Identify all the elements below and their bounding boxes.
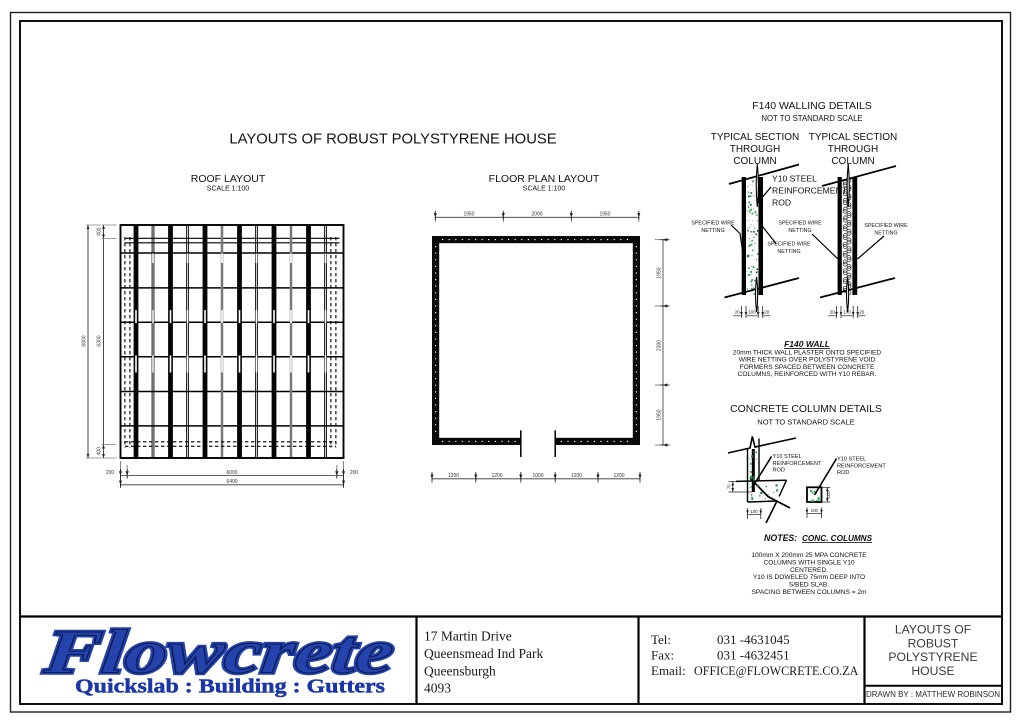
svg-text:400: 400 (97, 227, 103, 236)
svg-text:100: 100 (750, 509, 758, 514)
svg-text:Y10 IS DOWELED 75mm DEEP INTO: Y10 IS DOWELED 75mm DEEP INTO (753, 574, 865, 581)
svg-text:1200: 1200 (571, 473, 582, 479)
svg-text:COLUMN: COLUMN (733, 156, 776, 167)
svg-text:NETTING: NETTING (788, 228, 811, 234)
svg-text:Fax:: Fax: (651, 648, 674, 663)
svg-text:031 -4632451: 031 -4632451 (717, 648, 790, 663)
svg-text:Y10 STEEL: Y10 STEEL (773, 454, 802, 460)
svg-text:100: 100 (826, 490, 831, 498)
svg-text:LAYOUTS OF: LAYOUTS OF (895, 623, 971, 637)
svg-text:REINFORCEMENT: REINFORCEMENT (837, 463, 886, 469)
svg-text:S/BED SLAB.: S/BED SLAB. (789, 582, 829, 589)
svg-text:OFFICE@FLOWCRETE.CO.ZA: OFFICE@FLOWCRETE.CO.ZA (694, 664, 859, 678)
svg-text:17 Martin Drive: 17 Martin Drive (424, 629, 512, 644)
svg-text:F140 WALL: F140 WALL (784, 339, 830, 349)
svg-text:TYPICAL SECTION: TYPICAL SECTION (809, 132, 898, 143)
svg-text:NETTING: NETTING (874, 231, 897, 237)
svg-text:ROOF LAYOUT: ROOF LAYOUT (191, 173, 266, 185)
svg-text:HOUSE: HOUSE (911, 664, 954, 678)
svg-text:NOTES:: NOTES: (764, 533, 797, 543)
svg-text:200: 200 (106, 470, 115, 476)
svg-text:ROD: ROD (772, 198, 791, 208)
svg-text:SPECIFIED WIRE: SPECIFIED WIRE (778, 221, 822, 227)
svg-text:1950: 1950 (599, 211, 610, 217)
svg-text:1200: 1200 (613, 473, 624, 479)
svg-text:SCALE 1:100: SCALE 1:100 (207, 186, 250, 193)
svg-text:200: 200 (350, 470, 359, 476)
svg-text:Queensburgh: Queensburgh (424, 663, 496, 678)
svg-text:100: 100 (811, 508, 819, 513)
svg-text:Quickslab : Building : Gutters: Quickslab : Building : Gutters (75, 676, 385, 698)
svg-text:4093: 4093 (424, 681, 451, 696)
svg-text:Y10 STEEL: Y10 STEEL (772, 174, 817, 184)
svg-text:1200: 1200 (491, 473, 502, 479)
svg-text:REINFORCEMENT: REINFORCEMENT (773, 461, 822, 467)
svg-text:FORMERS SPACED BETWEEN CONCRET: FORMERS SPACED BETWEEN CONCRETE (740, 364, 875, 371)
svg-text:75: 75 (726, 484, 731, 489)
svg-text:TYPICAL SECTION: TYPICAL SECTION (711, 132, 800, 143)
svg-text:THROUGH: THROUGH (828, 144, 879, 155)
svg-text:031 -4631045: 031 -4631045 (717, 632, 790, 647)
svg-text:6300: 6300 (97, 335, 103, 346)
svg-text:NETTING: NETTING (777, 249, 800, 255)
svg-text:2300: 2300 (657, 340, 663, 351)
svg-text:CONCRETE COLUMN DETAILS: CONCRETE COLUMN DETAILS (730, 404, 882, 415)
svg-text:1000: 1000 (532, 473, 543, 479)
svg-text:THROUGH: THROUGH (730, 144, 781, 155)
svg-text:CONC. COLUMNS: CONC. COLUMNS (802, 534, 873, 543)
svg-text:Tel:: Tel: (651, 632, 671, 647)
svg-text:100: 100 (748, 310, 756, 315)
svg-text:20mm THICK WALL PLASTER ONTO S: 20mm THICK WALL PLASTER ONTO SPECIFIED (733, 350, 882, 357)
svg-text:6400: 6400 (226, 479, 237, 485)
svg-text:20: 20 (830, 310, 836, 315)
svg-text:2000: 2000 (531, 211, 542, 217)
svg-text:F140 WALLING DETAILS: F140 WALLING DETAILS (752, 100, 872, 112)
svg-text:COLUMN: COLUMN (831, 156, 874, 167)
svg-text:SPECIFIED WIRE: SPECIFIED WIRE (767, 242, 811, 248)
svg-text:1200: 1200 (448, 473, 459, 479)
svg-text:COLUMNS, REINFORCED WITH Y10 R: COLUMNS, REINFORCED WITH Y10 REBAR. (738, 371, 877, 378)
svg-text:SPACING BETWEEN COLUMNS = 2m: SPACING BETWEEN COLUMNS = 2m (751, 589, 867, 596)
svg-text:20: 20 (735, 310, 741, 315)
svg-text:DRAWN BY : MATTHEW ROBINSON: DRAWN BY : MATTHEW ROBINSON (866, 690, 1000, 699)
svg-text:Email:: Email: (651, 663, 686, 678)
svg-text:WIRE NETTING OVER POLYSTYRENE: WIRE NETTING OVER POLYSTYRENE VOID (739, 357, 876, 364)
svg-text:FLOOR PLAN LAYOUT: FLOOR PLAN LAYOUT (489, 173, 600, 185)
svg-text:SCALE 1:100: SCALE 1:100 (523, 186, 566, 193)
svg-text:Y10 STEEL: Y10 STEEL (837, 457, 866, 463)
svg-text:1950: 1950 (657, 267, 663, 278)
svg-text:100mm X 200mm 25 MPA CONCRETE: 100mm X 200mm 25 MPA CONCRETE (751, 552, 867, 559)
svg-text:NOT TO STANDARD SCALE: NOT TO STANDARD SCALE (761, 114, 862, 123)
svg-text:1950: 1950 (463, 211, 474, 217)
svg-text:400: 400 (97, 447, 103, 456)
svg-text:6000: 6000 (226, 470, 237, 476)
svg-text:SPECIFIED WIRE: SPECIFIED WIRE (691, 221, 735, 227)
svg-text:LAYOUTS OF ROBUST POLYSTYRENE: LAYOUTS OF ROBUST POLYSTYRENE HOUSE (229, 132, 556, 148)
svg-text:ROBUST: ROBUST (908, 636, 959, 650)
svg-text:COLUMNS WITH SINGLE Y10: COLUMNS WITH SINGLE Y10 (763, 559, 854, 566)
svg-text:1950: 1950 (657, 409, 663, 420)
svg-text:100: 100 (843, 310, 851, 315)
svg-text:20: 20 (764, 310, 770, 315)
svg-text:6800: 6800 (82, 335, 88, 346)
svg-text:Queensmead Ind Park: Queensmead Ind Park (424, 646, 543, 661)
svg-text:ROD: ROD (837, 470, 849, 476)
svg-text:NOT TO STANDARD SCALE: NOT TO STANDARD SCALE (757, 418, 854, 427)
svg-text:SPECIFIED WIRE: SPECIFIED WIRE (864, 223, 908, 229)
svg-text:20: 20 (859, 310, 865, 315)
svg-text:CENTERED.: CENTERED. (790, 567, 828, 574)
svg-text:REINFORCEMENT: REINFORCEMENT (772, 186, 848, 196)
svg-text:NETTING: NETTING (701, 228, 724, 234)
svg-text:ROD: ROD (773, 468, 785, 474)
svg-text:POLYSTYRENE: POLYSTYRENE (888, 650, 977, 664)
